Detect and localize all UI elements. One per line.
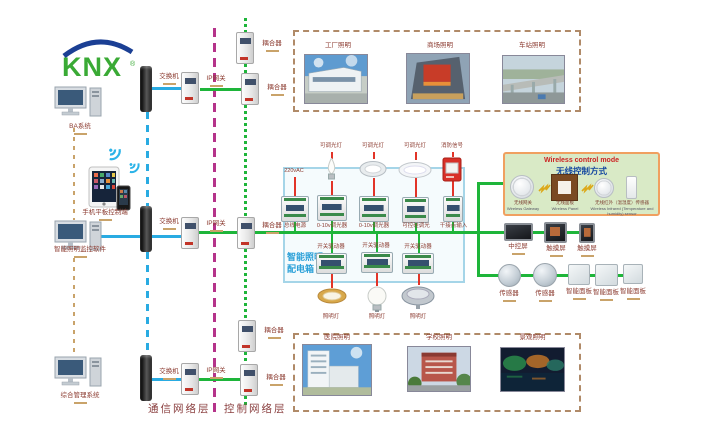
smart-panel-icon: [595, 264, 618, 286]
wireless-sensor-label-en: Wireless Infrared (Temperature and humid…: [589, 206, 655, 216]
touch-screen-label: 触摸屏: [538, 245, 574, 257]
red-lamp-line: [376, 273, 378, 286]
smart-panel-label: 智能面板: [614, 288, 652, 300]
red-lamp-line: [331, 274, 333, 288]
wireless-link-icon: [538, 182, 551, 194]
central-screen-icon: [504, 223, 533, 241]
red-mains-line: [415, 152, 417, 160]
actuator-label: 开关驱动器: [311, 244, 351, 251]
wireless-link-icon: [581, 182, 594, 194]
ip-gateway-label: IP网关: [199, 367, 233, 379]
wireless-th-sensor-icon: [626, 176, 637, 199]
landscape-photo: [500, 347, 565, 392]
smart-panel-icon: [623, 264, 643, 284]
wireless-gateway-label: 无线网关 Wireless Gateway: [502, 200, 544, 211]
school-photo: [407, 346, 471, 392]
green-link: [533, 231, 544, 234]
actuator-label: 开关驱动器: [356, 243, 396, 250]
touch-screen-label: 触摸屏: [570, 245, 604, 257]
sensor-icon: [533, 263, 557, 287]
knx-backbone-segment: [244, 352, 247, 364]
flush-lamp-icon: [317, 288, 347, 304]
dimmer-module-icon: [359, 196, 389, 222]
dry-contact-label: 干接点输入: [437, 223, 470, 230]
coupler-label: 耦合器: [258, 327, 290, 339]
touch-screen-icon: [579, 223, 595, 243]
lamp-label: 照明灯: [311, 314, 351, 321]
distribution-box-title-2: 配电箱: [287, 264, 314, 275]
wireless-panel-icon: [552, 175, 577, 200]
dimmable-light-label: 可调光灯: [395, 143, 435, 150]
dish-lamp-icon: [401, 285, 435, 311]
ip-gateway-icon: [181, 217, 199, 249]
dimmable-light-label: 可调光灯: [311, 143, 351, 150]
red-mains-line: [294, 177, 296, 196]
hospital-photo: [302, 344, 372, 396]
coupler-icon: [237, 217, 255, 249]
candle-bulb-icon: [325, 158, 338, 182]
factory-lighting-label: 工厂照明: [306, 42, 370, 50]
school-lighting-label: 学校照明: [407, 334, 471, 342]
fire-alarm-icon: [442, 157, 462, 182]
ctrl-layer-label: 控制网络层: [224, 401, 287, 416]
knx-logo-text: KNX: [62, 52, 122, 82]
thyristor-dimmer-module-icon: [402, 197, 429, 223]
knx-backbone-segment: [244, 105, 247, 217]
blue-dashed-line: [146, 112, 149, 206]
coupler-label: 耦合器: [260, 374, 292, 386]
station-lighting-label: 车站照明: [500, 42, 564, 50]
tan-dashed-line: [73, 128, 75, 220]
hospital-lighting-label: 医院照明: [302, 334, 372, 342]
green-branch-wireless: [477, 182, 503, 185]
wireless-sensor-label: 无线红外（温湿度）传感器 Wireless Infrared (Temperat…: [589, 200, 655, 216]
bus-power-label: 总线电源: [277, 223, 313, 230]
wireless-ir-sensor-icon: [594, 178, 614, 198]
mall-lighting-label: 商场照明: [408, 42, 472, 50]
wireless-sensor-label-zh: 无线红外（温湿度）传感器: [589, 200, 655, 206]
dry-contact-module-icon: [443, 196, 463, 222]
dimmer-module-icon: [317, 195, 347, 221]
management-computer-icon: [54, 356, 104, 392]
switch-actuator-icon: [402, 253, 434, 274]
coupler-icon: [241, 73, 259, 105]
wireless-panel-label-en: Wireless Panel: [546, 206, 584, 211]
ip-gateway-icon: [181, 363, 199, 395]
sensor-label: 传感器: [490, 290, 528, 302]
wireless-panel-label: 无线面板 Wireless Panel: [546, 200, 584, 211]
dimmable-light-label: 可调光灯: [353, 143, 393, 150]
ip-gateway-label: IP网关: [199, 75, 233, 87]
sensor-icon: [498, 264, 521, 287]
coupler-icon: [236, 32, 254, 64]
wifi-icon: [124, 158, 145, 179]
landscape-lighting-label: 景观照明: [500, 334, 565, 342]
coupler-label: 耦合器: [261, 84, 293, 96]
red-mains-line: [373, 178, 375, 196]
green-link: [556, 274, 568, 277]
tan-dashed-line: [73, 258, 75, 356]
green-link: [567, 231, 579, 234]
knx-backbone-segment: [244, 18, 247, 32]
central-screen-label: 中控屏: [500, 243, 536, 255]
lighting-monitor-label: 智能照明监控软件: [35, 246, 125, 258]
wireless-gateway-icon: [510, 175, 534, 199]
switch-actuator-icon: [316, 253, 347, 274]
mobile-terminal-label: 手机平板控制端: [60, 209, 150, 221]
switch-actuator-icon: [361, 252, 393, 273]
actuator-label: 开关驱动器: [398, 244, 438, 251]
smart-panel-icon: [568, 264, 590, 285]
fire-signal-label: 消防信号: [432, 143, 472, 150]
comm-layer-label: 通信网络层: [148, 401, 211, 416]
ba-computer-icon: [54, 86, 104, 122]
wireless-title-en: Wireless control mode: [505, 157, 658, 164]
coupler-icon: [240, 364, 258, 396]
management-system-label: 综合管理系统: [40, 392, 120, 404]
oval-ceiling-light-icon: [398, 161, 432, 179]
lamp-label: 照明灯: [398, 314, 438, 321]
ip-gateway-label: IP网关: [199, 220, 233, 232]
mall-photo: [406, 53, 470, 104]
station-photo: [502, 55, 565, 104]
dimmer-label: 0-10v调光器: [353, 223, 395, 230]
green-bus-line: [200, 88, 243, 91]
factory-photo: [304, 54, 368, 104]
green-link: [521, 274, 533, 277]
sensor-label: 传感器: [526, 290, 564, 302]
knx-logo-reg: ®: [130, 60, 136, 68]
red-mains-line: [415, 178, 417, 197]
wifi-icon: [103, 142, 128, 167]
knx-logo: KNX ®: [56, 36, 140, 82]
diagram-canvas: KNX ® BA系统 智能照明监控软件 综合管理系统: [0, 0, 715, 443]
wireless-gateway-label-en: Wireless Gateway: [502, 206, 544, 211]
knx-backbone-segment: [244, 64, 247, 73]
phone-icon: [116, 185, 131, 211]
green-riser-line: [477, 182, 480, 277]
red-mains-line: [373, 152, 375, 159]
touch-screen-icon: [544, 222, 567, 243]
bus-power-module-icon: [281, 196, 309, 222]
knx-backbone-segment: [244, 249, 247, 320]
blue-line: [150, 87, 182, 90]
lamp-label: 照明灯: [357, 314, 397, 321]
bulb-lamp-icon: [367, 286, 387, 313]
dimmer-label: 0-10v调光器: [311, 223, 353, 230]
downlight-icon: [359, 160, 387, 179]
coupler-icon: [238, 320, 256, 352]
thyristor-dimmer-label: 可控硅调光: [397, 223, 435, 230]
green-branch-sensors: [477, 274, 500, 277]
red-mains-line: [331, 181, 333, 196]
red-mains-line: [452, 181, 454, 196]
red-lamp-line: [418, 274, 420, 285]
blue-dashed-line: [146, 252, 149, 355]
coupler-label: 耦合器: [256, 40, 288, 52]
power-input-label: 220vAC: [274, 168, 314, 175]
ba-system-label: BA系统: [40, 123, 120, 135]
ip-gateway-icon: [181, 72, 199, 104]
